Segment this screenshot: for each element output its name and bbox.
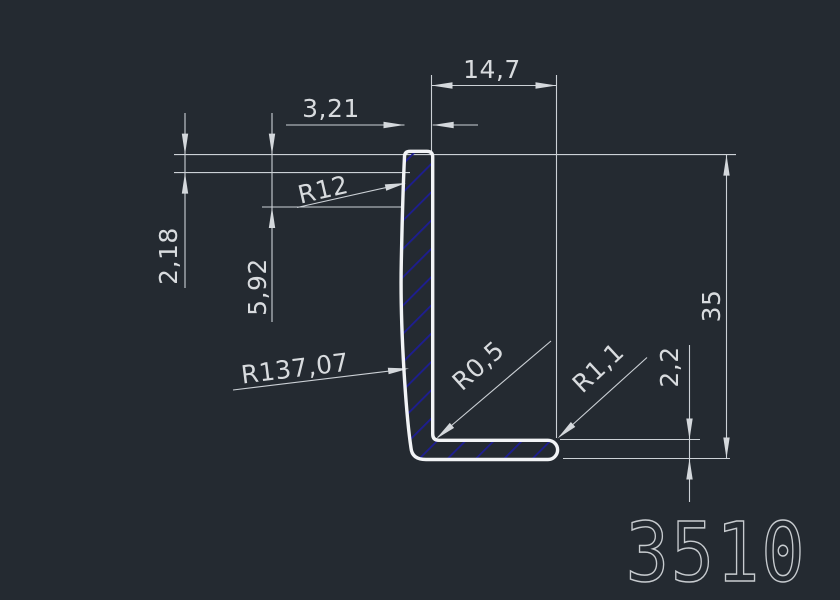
cad-drawing-canvas[interactable]: 14,7 3,21 R12 2,18 5,92 R137,07 R0,5 [0,0,840,600]
dim-label: 35 [697,290,726,323]
dim-label: 5,92 [243,258,272,316]
dim-label: 2,2 [655,346,684,387]
dim-label: 2,18 [154,227,183,285]
part-number: 3510 [626,506,807,600]
dim-label: 3,21 [302,94,360,123]
dim-label: 14,7 [463,55,521,84]
cad-viewport[interactable]: 14,7 3,21 R12 2,18 5,92 R137,07 R0,5 [0,0,840,600]
